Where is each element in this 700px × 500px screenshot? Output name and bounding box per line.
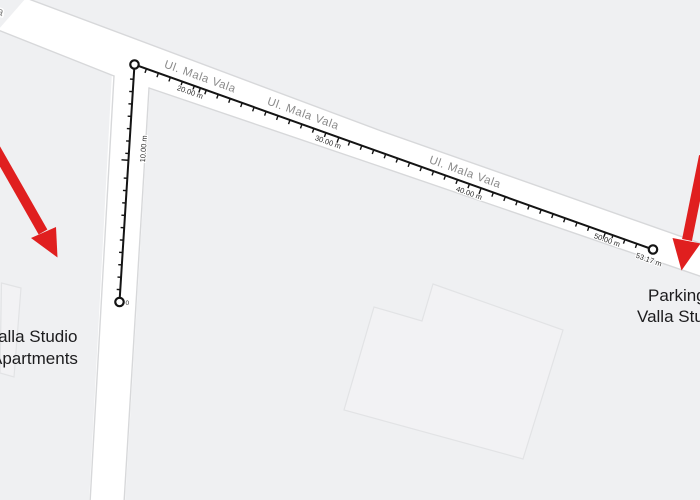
distance-label-10m: 10.00 m [138,135,149,163]
poi-right-line2[interactable]: Valla Studio [637,307,700,326]
street-label-edge-partial: a [0,6,6,20]
map-viewport: Ul. Mala Vala Ul. Mala Vala Ul. Mala Val… [0,0,700,500]
measure-node-end[interactable] [649,245,657,253]
arrow-right-shaft [687,156,700,240]
poi-right-line1[interactable]: Parking [648,286,700,305]
arrow-left-head [31,227,58,258]
arrow-left-shaft [0,146,43,232]
building-bottom-center [344,284,563,459]
poi-left-line1[interactable]: Valla Studio [0,327,77,346]
measure-node-start[interactable] [115,298,123,306]
annotation-arrow-left [0,146,58,258]
poi-label-parking-valla-studio[interactable]: Parking Valla Studio [637,286,700,326]
poi-left-line2[interactable]: Apartments [0,349,78,368]
road-edge-lower-right [149,88,700,278]
distance-label-origin: 0 [126,300,130,307]
measure-node-corner[interactable] [130,60,138,68]
map-canvas[interactable]: Ul. Mala Vala Ul. Mala Vala Ul. Mala Val… [0,0,700,500]
